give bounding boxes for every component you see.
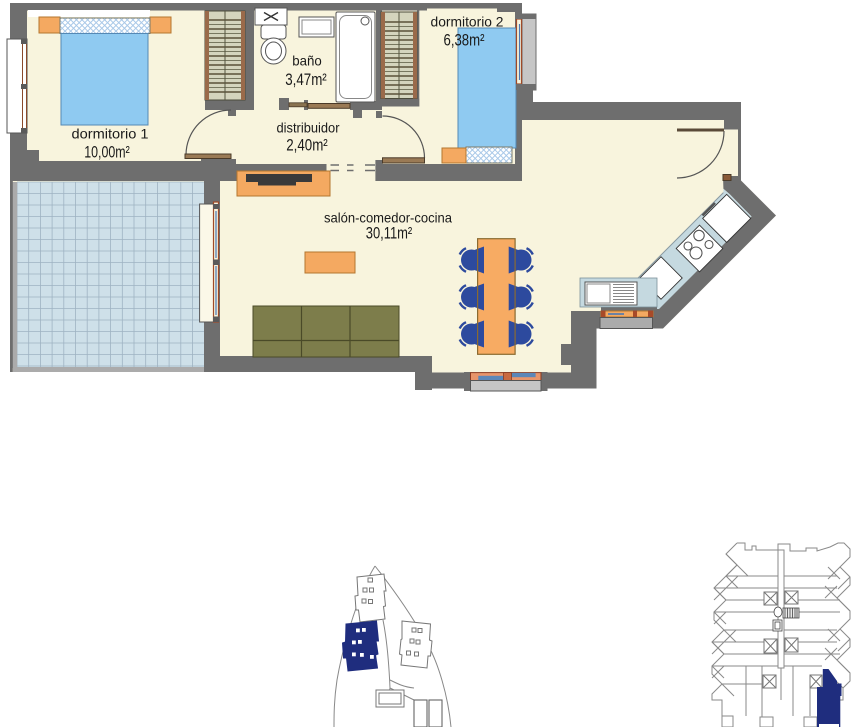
svg-text:salón-comedor-cocina: salón-comedor-cocina [324, 210, 452, 226]
svg-text:distribuidor: distribuidor [277, 120, 340, 136]
svg-text:dormitorio 1: dormitorio 1 [72, 126, 149, 142]
svg-text:dormitorio 2: dormitorio 2 [431, 14, 504, 30]
svg-text:6,38m²: 6,38m² [444, 32, 485, 50]
svg-text:2,40m²: 2,40m² [286, 137, 328, 155]
svg-text:10,00m²: 10,00m² [84, 144, 130, 162]
svg-text:baño: baño [292, 53, 322, 69]
svg-text:30,11m²: 30,11m² [366, 225, 413, 243]
svg-text:3,47m²: 3,47m² [285, 71, 327, 89]
